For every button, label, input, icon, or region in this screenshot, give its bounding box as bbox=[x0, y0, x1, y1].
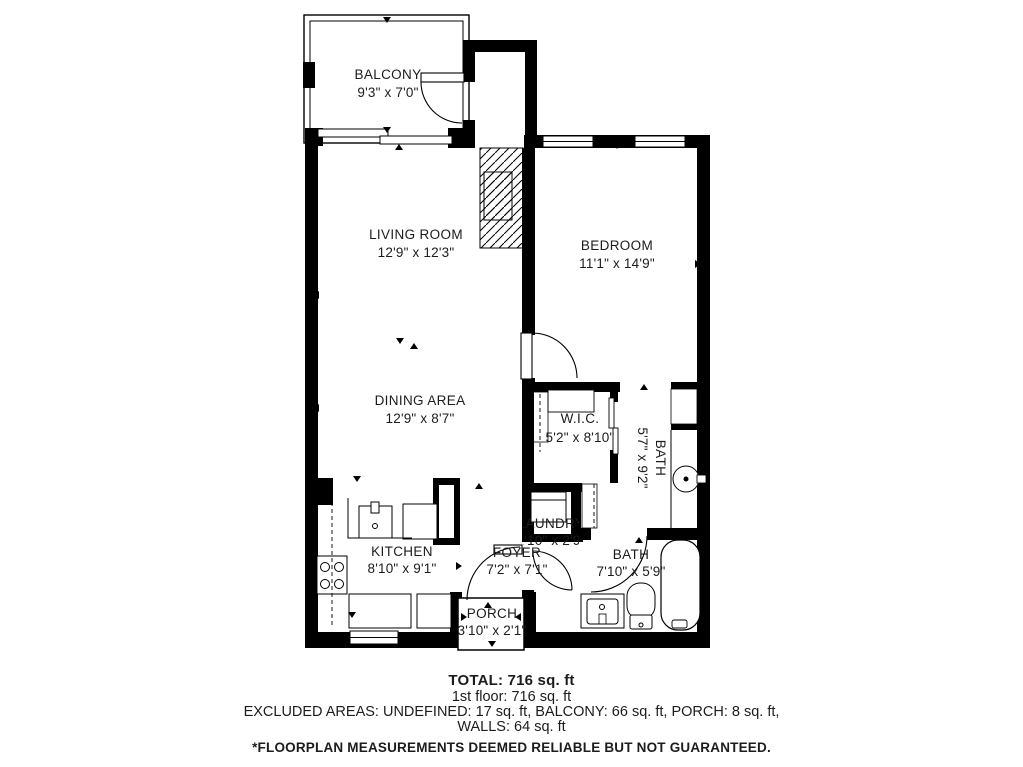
linen-cabinet bbox=[582, 484, 597, 528]
balcony-door bbox=[421, 73, 464, 123]
room-dims: 12'9" x 8'7" bbox=[386, 410, 455, 428]
room-dims: 7'10" x 5'9" bbox=[597, 563, 666, 580]
balcony-slider-window bbox=[318, 129, 452, 144]
room-name: DINING AREA bbox=[375, 392, 466, 410]
room-name: BATH bbox=[613, 546, 649, 563]
room-name: BALCONY bbox=[355, 66, 422, 84]
room-label-foyer: FOYER 7'2" x 7'1" bbox=[486, 544, 547, 578]
room-dims: 3'10" x 2'1" bbox=[458, 622, 527, 639]
room-label-bath-main: BATH 7'10" x 5'9" bbox=[597, 546, 666, 580]
room-name: FOYER bbox=[493, 544, 541, 561]
fridge bbox=[403, 504, 437, 539]
room-name: PORCH bbox=[467, 605, 518, 622]
floorplan-page: BALCONY 9'3" x 7'0" LIVING ROOM 12'9" x … bbox=[0, 0, 1023, 767]
room-label-living-room: LIVING ROOM 12'9" x 12'3" bbox=[369, 226, 463, 262]
room-name: LIVING ROOM bbox=[369, 226, 463, 244]
room-dims: 9'3" x 7'0" bbox=[357, 84, 418, 102]
room-dims: 7'2" x 7'1" bbox=[486, 561, 547, 578]
room-label-kitchen: KITCHEN 8'10" x 9'1" bbox=[368, 543, 437, 577]
room-name: LAUNDRY bbox=[523, 515, 579, 532]
room-label-porch: PORCH 3'10" x 2'1" bbox=[458, 605, 527, 639]
bedroom-window-right bbox=[635, 136, 685, 147]
hatched-shaft bbox=[480, 148, 523, 248]
room-name: BATH bbox=[651, 440, 669, 476]
excluded-areas-text: EXCLUDED AREAS: UNDEFINED: 17 sq. ft, BA… bbox=[0, 704, 1023, 720]
room-dims: 11'1" x 14'9" bbox=[579, 255, 655, 273]
room-name: BEDROOM bbox=[581, 237, 653, 255]
kitchen-window bbox=[350, 631, 398, 644]
walls-area-text: WALLS: 64 sq. ft bbox=[0, 719, 1023, 735]
ensuite-niche bbox=[671, 389, 697, 424]
room-dims: 5'2" x 8'10" bbox=[546, 428, 615, 447]
bedroom-door bbox=[521, 333, 577, 379]
room-label-wic: W.I.C. 5'2" x 8'10" bbox=[546, 409, 615, 447]
room-label-bath-ensuite: BATH 5'7" x 9'2" bbox=[633, 427, 669, 488]
storage-structure-walls bbox=[463, 40, 537, 148]
room-name: W.I.C. bbox=[561, 409, 600, 428]
bathtub bbox=[661, 540, 700, 630]
kitchen-sink bbox=[359, 502, 392, 538]
disclaimer-text: *FLOORPLAN MEASUREMENTS DEEMED RELIABLE … bbox=[0, 740, 1023, 755]
toilet bbox=[627, 583, 655, 629]
room-label-dining-area: DINING AREA 12'9" x 8'7" bbox=[375, 392, 466, 428]
room-name: KITCHEN bbox=[371, 543, 433, 560]
counter-bottom-left bbox=[349, 594, 411, 628]
total-area-text: TOTAL: 716 sq. ft bbox=[0, 672, 1023, 689]
bathtub-faucet bbox=[672, 620, 687, 628]
room-dims: 12'9" x 12'3" bbox=[378, 244, 455, 262]
room-dims: 8'10" x 9'1" bbox=[368, 560, 437, 577]
bedroom-window-left bbox=[543, 136, 593, 147]
vanity-sink bbox=[581, 594, 624, 628]
room-label-balcony: BALCONY 9'3" x 7'0" bbox=[355, 66, 422, 102]
floorplan-drawing bbox=[0, 0, 1023, 767]
counter-bottom-right bbox=[417, 594, 451, 628]
first-floor-area-text: 1st floor: 716 sq. ft bbox=[0, 689, 1023, 705]
room-label-bedroom: BEDROOM 11'1" x 14'9" bbox=[579, 237, 655, 273]
room-dims: 5'7" x 9'2" bbox=[633, 427, 651, 488]
